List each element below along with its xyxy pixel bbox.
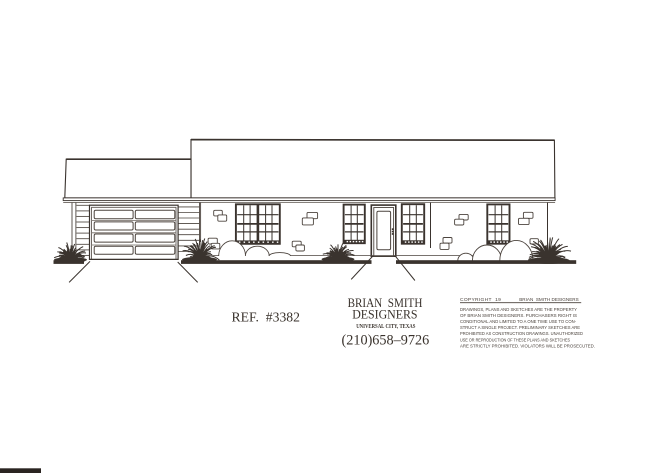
svg-text:BRIAN SMITH DESIGNERS: BRIAN SMITH DESIGNERS — [519, 297, 579, 303]
svg-text:STRUCT A SINGLE PROJECT. PREL: STRUCT A SINGLE PROJECT. PRELIMINARY SKE… — [460, 325, 581, 331]
svg-text:PROHIBITED AS CONSTRUCTION DRA: PROHIBITED AS CONSTRUCTION DRAWINGS. UNA… — [460, 331, 583, 337]
svg-text:CONDITIONAL AND LIMITED TO A O: CONDITIONAL AND LIMITED TO A ONE TIME US… — [460, 319, 576, 325]
svg-text:DESIGNERS: DESIGNERS — [352, 306, 417, 321]
svg-text:OF BRIAN SMITH DESIGNERS. PUR: OF BRIAN SMITH DESIGNERS. PURCHASERS RIG… — [460, 313, 578, 319]
svg-text:REF. #3382: REF. #3382 — [232, 310, 301, 325]
svg-text:USE OR REPRODUCTION OF THESE P: USE OR REPRODUCTION OF THESE PLANS AND S… — [460, 337, 571, 343]
svg-text:(210)658–9726: (210)658–9726 — [342, 332, 430, 348]
svg-text:UNIVERSAL CITY, TEXAS: UNIVERSAL CITY, TEXAS — [356, 323, 416, 330]
svg-text:ARE STRICTLY PROHIBITED. VIOL: ARE STRICTLY PROHIBITED. VIOLATORS WILL … — [460, 343, 595, 349]
svg-text:DRAWINGS, PLANS AND SKETCHES A: DRAWINGS, PLANS AND SKETCHES ARE THE PRO… — [460, 307, 578, 313]
svg-text:COPYRIGHT 19: COPYRIGHT 19 — [460, 297, 501, 303]
